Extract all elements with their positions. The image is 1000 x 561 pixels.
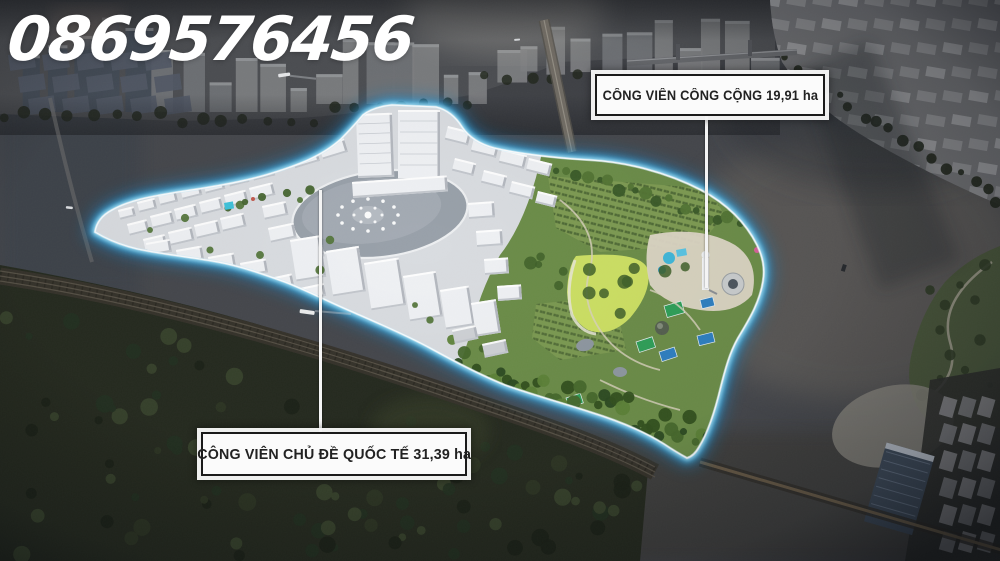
callout-theme-park: CÔNG VIÊN CHỦ ĐỀ QUỐC TẾ 31,39 ha	[201, 432, 467, 476]
callout-public-park-label: CÔNG VIÊN CÔNG CỘNG 19,91 ha	[602, 88, 818, 103]
callout-public-park: CÔNG VIÊN CÔNG CỘNG 19,91 ha	[595, 74, 825, 116]
watermark-phone-number: 0869576456	[4, 4, 416, 75]
callout-theme-park-label: CÔNG VIÊN CHỦ ĐỀ QUỐC TẾ 31,39 ha	[197, 446, 471, 463]
aerial-masterplan-render	[0, 0, 1000, 561]
aerial-masterplan-scene: 0869576456 CÔNG VIÊN CÔNG CỘNG 19,91 ha …	[0, 0, 1000, 561]
leader-line-theme-park	[319, 190, 322, 433]
leader-line-public-park	[705, 116, 708, 288]
